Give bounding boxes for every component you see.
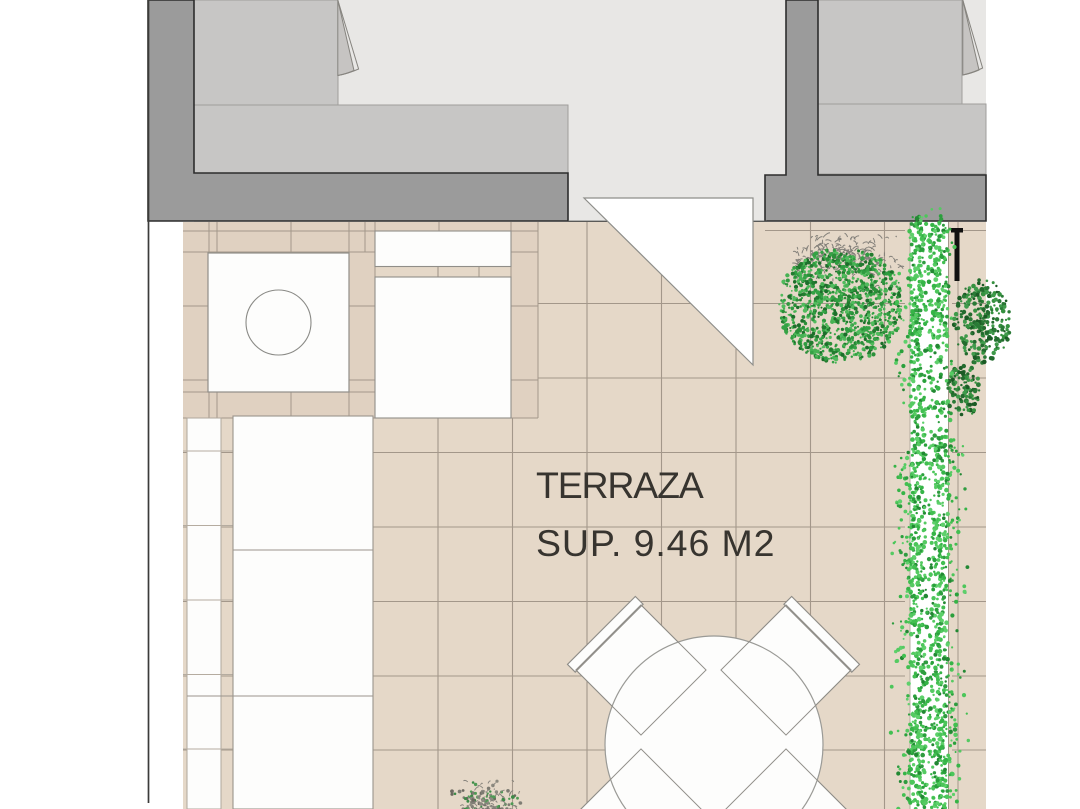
svg-text:SUP. 9.46 M2: SUP. 9.46 M2 (536, 522, 775, 564)
svg-text:TERRAZA: TERRAZA (536, 464, 704, 506)
